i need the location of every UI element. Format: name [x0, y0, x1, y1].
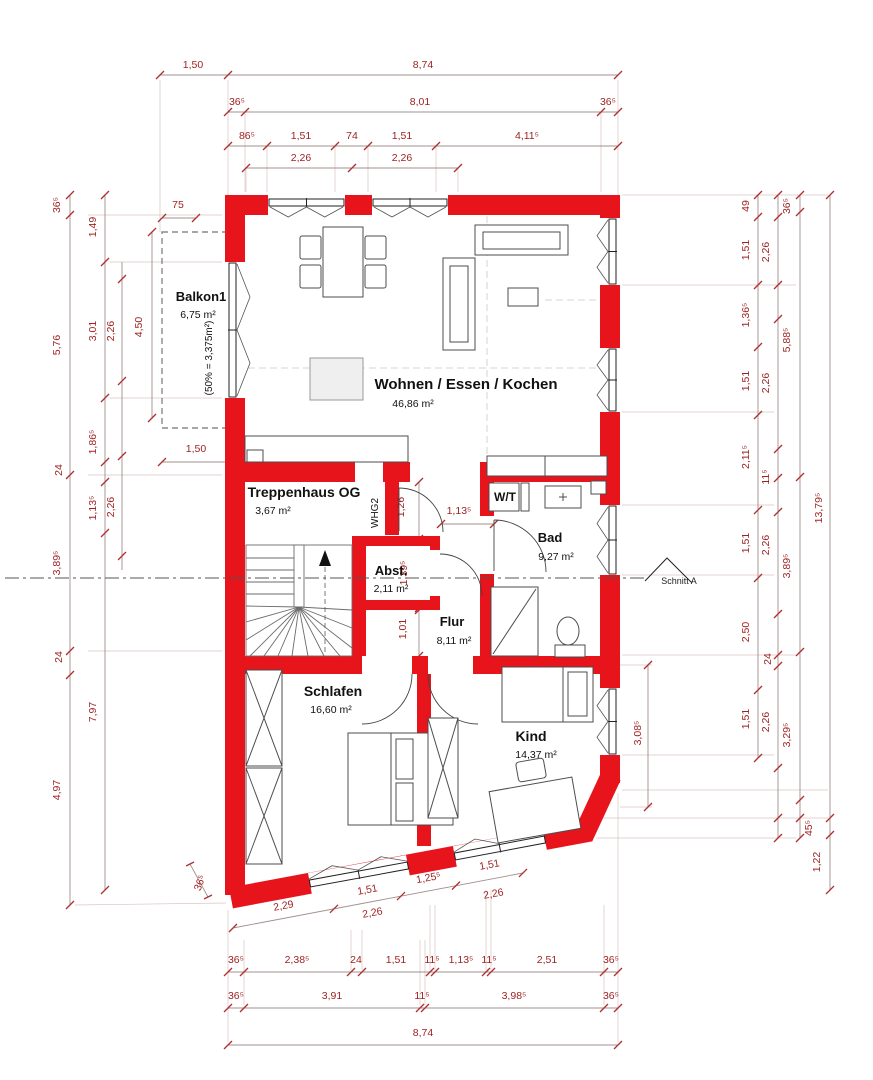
chair — [300, 265, 321, 288]
dimension-label: 24 — [762, 653, 774, 665]
room-label-abst: Abst. — [375, 563, 408, 578]
dimension-label: 1,01 — [397, 619, 409, 640]
dimension-label: 3,89⁵ — [781, 554, 793, 579]
dimension-label: 2,26 — [482, 886, 504, 902]
dimension-label: 3,01 — [87, 321, 99, 342]
door-arc-kind — [428, 674, 478, 724]
shelf — [591, 481, 606, 494]
dimension-label: 36⁵ — [229, 96, 245, 108]
chair — [365, 265, 386, 288]
kitchen-counter — [487, 456, 607, 476]
section-label: Schnitt A — [661, 576, 697, 586]
room-area-wohnen: 46,86 m² — [392, 398, 434, 410]
room-label-wt: W/T — [494, 490, 517, 504]
dimension-label: 11⁵ — [481, 954, 496, 966]
room-area-flur: 8,11 m² — [437, 635, 472, 647]
dimension-label: 74 — [346, 130, 358, 142]
dimension-label: 24 — [350, 954, 362, 966]
dimension-label: 24 — [53, 651, 65, 663]
dimension-label: 4,11⁵ — [515, 130, 539, 142]
dimension-label: 1,22 — [811, 852, 823, 873]
room-area-abst: 2,11 m² — [374, 583, 409, 595]
dimension-label: 1,13⁵ — [87, 496, 99, 521]
room-label-schlafen: Schlafen — [304, 683, 362, 699]
dimension-label: 1,13⁵ — [447, 505, 472, 517]
room-area-kind: 14,37 m² — [515, 749, 557, 761]
dimension-label: 2,51 — [537, 954, 558, 966]
extension-lines — [75, 80, 828, 1042]
dimension-label: 1,51 — [478, 857, 500, 873]
dimension-label: 49 — [740, 200, 752, 212]
dimension-label: 8,01 — [410, 96, 431, 108]
dimension-label: 2,26 — [291, 152, 312, 164]
dimension-label: 1,51 — [386, 954, 407, 966]
dimension-label: 2,38⁵ — [285, 954, 310, 966]
toilet — [557, 617, 579, 645]
room-label-balkon: Balkon1 — [176, 289, 227, 304]
dimension-label: 1,13⁵ — [449, 954, 474, 966]
dimension-label: 3,89⁵ — [51, 551, 63, 576]
dimension-label: 4,97 — [51, 780, 63, 801]
dimension-label: 1,51 — [392, 130, 413, 142]
dimension-label: 36⁵ — [600, 96, 616, 108]
dimension-label: 1,51 — [740, 371, 752, 392]
desk-chair — [515, 758, 546, 783]
dimension-label: 2,26 — [760, 712, 772, 733]
dimension-label: 24 — [53, 464, 65, 476]
dimension-label: 5,88⁵ — [781, 328, 793, 353]
room-area-balkon: 6,75 m² — [180, 309, 216, 321]
room-label-wohnen: Wohnen / Essen / Kochen — [374, 376, 557, 393]
dimension-label: 75 — [172, 199, 184, 211]
dimension-label: 3,98⁵ — [502, 990, 527, 1002]
dimension-label: 1,51 — [740, 709, 752, 730]
sideboard — [310, 358, 363, 400]
dimension-label: 2,50 — [740, 622, 752, 643]
dimension-label: 3,29⁵ — [781, 723, 793, 748]
room-label-kind: Kind — [515, 728, 546, 744]
chair — [300, 236, 321, 259]
coffee-table — [508, 288, 538, 306]
room-label-bad: Bad — [538, 530, 563, 545]
dimension-label: 36⁵ — [228, 990, 244, 1002]
dimension-label: 36⁵ — [192, 873, 209, 892]
dimension-label: 13,79⁵ — [813, 493, 825, 524]
dimension-label: 36⁵ — [781, 198, 793, 214]
room-note-balkon: (50% = 3,375m²) — [204, 321, 215, 396]
dimension-label: 2,26 — [361, 905, 383, 921]
dimension-label: 8,74 — [413, 1027, 434, 1039]
dimension-label: 1,50 — [183, 59, 204, 71]
dimension-label: 1,51 — [740, 240, 752, 261]
dimension-label: 2,26 — [105, 321, 117, 342]
dimension-label: 1,51 — [740, 533, 752, 554]
dimension-label: 1,49 — [87, 217, 99, 238]
room-label-flur: Flur — [440, 614, 465, 629]
floor-plan-drawing: 1,508,7436⁵8,0136⁵86⁵1,51741,514,11⁵2,26… — [0, 0, 873, 1080]
balcony-outline — [162, 232, 232, 428]
dimension-label: 11⁵ — [424, 954, 439, 966]
dimension-label: 1,26 — [395, 497, 407, 518]
door-arc-schlafen — [362, 674, 412, 724]
dimension-label: 4,50 — [133, 317, 145, 338]
dimension-label: 2,26 — [392, 152, 413, 164]
door-arc-bad — [494, 520, 546, 572]
dimension-chains — [66, 71, 834, 1049]
dimension-label: 8,74 — [413, 59, 434, 71]
staircase — [246, 545, 352, 656]
dimension-label: 2,26 — [105, 497, 117, 518]
dimension-label: 2,26 — [760, 242, 772, 263]
dimension-label: 86⁵ — [239, 130, 255, 142]
room-area-treppenhaus: 3,67 m² — [255, 505, 291, 517]
dimension-label: 36⁵ — [603, 990, 619, 1002]
dimension-label: 1,51 — [356, 882, 378, 898]
dimension-label: 2,26 — [760, 373, 772, 394]
door-label-whg2: WHG2 — [370, 498, 381, 528]
dimension-label: 11⁵ — [760, 469, 772, 484]
chair — [365, 236, 386, 259]
dimension-label: 1,51 — [291, 130, 312, 142]
room-label-treppenhaus: Treppenhaus OG — [248, 484, 361, 500]
dimension-label: 45⁵ — [803, 820, 815, 836]
floor-plan-page: 1,508,7436⁵8,0136⁵86⁵1,51741,514,11⁵2,26… — [0, 0, 873, 1080]
dimension-label: 36⁵ — [603, 954, 619, 966]
room-area-bad: 9,27 m² — [538, 551, 574, 563]
dimension-label: 11⁵ — [414, 990, 429, 1002]
dimension-label: 1,86⁵ — [87, 430, 99, 455]
dimension-label: 1,36⁵ — [740, 303, 752, 328]
dimension-label: 7,97 — [87, 702, 99, 723]
dimension-label: 3,91 — [322, 990, 343, 1002]
dining-table — [323, 227, 363, 297]
room-area-schlafen: 16,60 m² — [310, 704, 352, 716]
dimension-label: 3,08⁵ — [632, 721, 644, 746]
dimension-label: 1,50 — [186, 443, 207, 455]
kitchen-counter — [245, 436, 408, 462]
dimension-label: 36⁵ — [228, 954, 244, 966]
door-arc-abst — [440, 554, 482, 596]
dimension-label: 5,76 — [51, 335, 63, 356]
dimension-label: 36⁵ — [51, 197, 63, 213]
dimension-label: 2,26 — [760, 535, 772, 556]
dimension-label: 2,11⁵ — [740, 445, 752, 469]
dimension-label: 2,29 — [272, 898, 294, 914]
